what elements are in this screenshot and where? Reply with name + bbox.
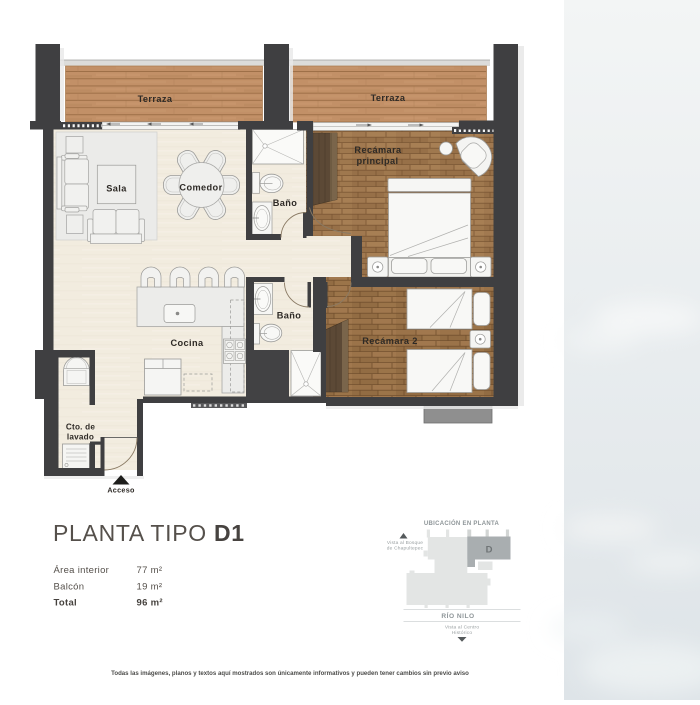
svg-text:Cocina: Cocina — [170, 338, 204, 348]
svg-text:D: D — [486, 545, 493, 556]
svg-text:Vista al Centro: Vista al Centro — [445, 625, 480, 631]
svg-text:Cto. de: Cto. de — [66, 423, 95, 432]
svg-text:Recámara 2: Recámara 2 — [362, 336, 418, 346]
svg-text:19 m²: 19 m² — [137, 582, 163, 593]
svg-text:UBICACIÓN EN PLANTA: UBICACIÓN EN PLANTA — [424, 519, 500, 527]
svg-text:Todas las imágenes, planos y t: Todas las imágenes, planos y textos aquí… — [111, 670, 469, 677]
svg-text:RÍO NILO: RÍO NILO — [441, 611, 474, 620]
svg-text:PLANTA TIPO D1: PLANTA TIPO D1 — [53, 520, 245, 546]
svg-text:Baño: Baño — [273, 198, 298, 208]
svg-text:principal: principal — [357, 156, 399, 166]
svg-text:Recámara: Recámara — [354, 145, 402, 155]
svg-text:Total: Total — [54, 598, 78, 609]
svg-text:lavado: lavado — [67, 433, 94, 442]
svg-text:96 m²: 96 m² — [137, 598, 163, 609]
svg-text:Terraza: Terraza — [371, 93, 406, 103]
svg-text:Vista al Bosque: Vista al Bosque — [387, 540, 423, 546]
svg-text:de Chapultepec: de Chapultepec — [387, 546, 424, 552]
svg-text:Balcón: Balcón — [54, 582, 85, 593]
svg-text:Área interior: Área interior — [54, 565, 110, 576]
svg-text:Comedor: Comedor — [179, 183, 222, 193]
svg-text:Histórico: Histórico — [452, 630, 473, 636]
svg-text:Baño: Baño — [277, 311, 302, 321]
svg-text:Terraza: Terraza — [138, 94, 173, 104]
svg-text:77 m²: 77 m² — [137, 565, 163, 576]
svg-text:Acceso: Acceso — [107, 486, 135, 495]
svg-text:Sala: Sala — [106, 184, 127, 194]
